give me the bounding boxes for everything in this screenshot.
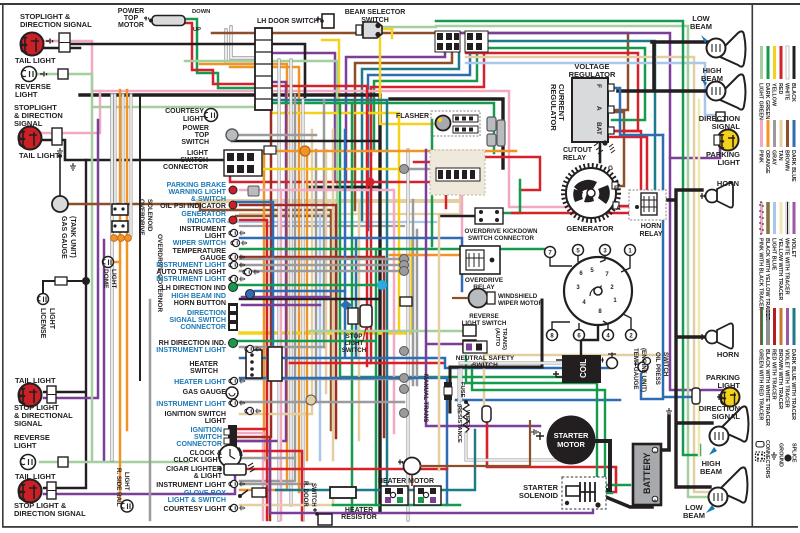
svg-text:LIGHT GREEN: LIGHT GREEN: [758, 83, 764, 120]
svg-text:LIGHT: LIGHT: [187, 150, 209, 157]
svg-text:NEUTRAL SAFETY: NEUTRAL SAFETY: [456, 355, 515, 362]
svg-text:PINK WITH BLACK TRACER: PINK WITH BLACK TRACER: [758, 238, 764, 311]
svg-text:GAS GAUGE: GAS GAUGE: [60, 216, 67, 259]
svg-text:TEMP GAUGE: TEMP GAUGE: [632, 348, 639, 390]
svg-text:SWITCH: SWITCH: [472, 362, 498, 369]
svg-text:BEAM: BEAM: [701, 74, 723, 83]
svg-text:STOP: STOP: [346, 333, 363, 340]
svg-text:FUSE: FUSE: [459, 382, 465, 398]
svg-text:UP: UP: [193, 27, 201, 33]
svg-text:-: -: [654, 449, 656, 455]
svg-text:DIRECTION SIGNAL: DIRECTION SIGNAL: [20, 20, 92, 29]
svg-text:OIL PRESS: OIL PRESS: [654, 352, 661, 385]
svg-text:YELLOW: YELLOW: [771, 83, 777, 107]
svg-text:LIGHT: LIGHT: [345, 340, 364, 347]
svg-text:OIL PSI INDICATOR: OIL PSI INDICATOR: [160, 202, 226, 210]
svg-text:WHITE WITH TRACER: WHITE WITH TRACER: [784, 238, 790, 295]
svg-text:LIGHT: LIGHT: [718, 381, 741, 390]
svg-text:LIGHT & SWITCH: LIGHT & SWITCH: [168, 496, 226, 504]
svg-text:SIGNAL: SIGNAL: [712, 412, 741, 421]
svg-text:MANUAL TRANS: MANUAL TRANS: [422, 374, 428, 422]
svg-text:INSTRUMENT LIGHT: INSTRUMENT LIGHT: [156, 481, 226, 489]
svg-text:(TANK UNIT): (TANK UNIT): [69, 216, 76, 258]
svg-text:RED: RED: [777, 83, 783, 94]
svg-text:BAT: BAT: [595, 122, 602, 135]
svg-text:REGULATOR: REGULATOR: [549, 84, 558, 131]
svg-text:REGULATOR: REGULATOR: [569, 70, 616, 79]
svg-text:PINK: PINK: [758, 150, 764, 163]
svg-text:LH DOOR SWITCH: LH DOOR SWITCH: [257, 18, 319, 25]
svg-text:& LIGHT: & LIGHT: [194, 472, 223, 480]
svg-text:COIL: COIL: [579, 359, 588, 378]
svg-text:CUTOUT: CUTOUT: [563, 147, 593, 154]
svg-text:LIGHT: LIGHT: [15, 90, 38, 99]
svg-text:TOP: TOP: [195, 132, 210, 139]
svg-text:DOME: DOME: [102, 269, 109, 289]
svg-text:SIGNAL: SIGNAL: [14, 119, 43, 128]
svg-text:VIOLET WITH TRACER: VIOLET WITH TRACER: [784, 349, 790, 408]
svg-text:SWITCH: SWITCH: [181, 139, 209, 146]
svg-text:REVERSE: REVERSE: [469, 313, 499, 320]
svg-text:BLACK WITH WHITE TRACER: BLACK WITH WHITE TRACER: [764, 349, 770, 426]
svg-text:SWITCH: SWITCH: [180, 157, 208, 164]
svg-text:GREEN WITH RED TRACER: GREEN WITH RED TRACER: [758, 349, 764, 420]
svg-text:+: +: [653, 498, 656, 504]
svg-text:COURTESY LIGHT: COURTESY LIGHT: [163, 505, 226, 513]
svg-text:TRANS): TRANS): [501, 328, 507, 350]
svg-text:RED WITH TRACER: RED WITH TRACER: [771, 349, 777, 400]
svg-text:SWITCH CONNECTOR: SWITCH CONNECTOR: [468, 235, 534, 242]
svg-text:SWITCH: SWITCH: [190, 367, 218, 375]
svg-text:LIGHT: LIGHT: [718, 158, 741, 167]
svg-text:POWER: POWER: [183, 125, 209, 132]
svg-text:COURTESY: COURTESY: [165, 108, 204, 115]
svg-text:BEAM: BEAM: [683, 511, 705, 520]
svg-text:TAIL LIGHT: TAIL LIGHT: [15, 56, 56, 65]
svg-text:SIGNAL: SIGNAL: [712, 122, 741, 131]
svg-text:DARK BLUE WITH TRACER: DARK BLUE WITH TRACER: [790, 349, 796, 420]
svg-text:DIRECTION SIGNAL: DIRECTION SIGNAL: [14, 509, 86, 518]
svg-text:TAIL LIGHT: TAIL LIGHT: [15, 472, 56, 481]
svg-text:INSTRUMENT LIGHT: INSTRUMENT LIGHT: [156, 400, 226, 408]
svg-text:RELAY: RELAY: [639, 231, 662, 238]
svg-text:OVERDRIVE: OVERDRIVE: [138, 199, 145, 235]
svg-text:LIGHT BLUE: LIGHT BLUE: [771, 238, 777, 271]
svg-text:SWITCH: SWITCH: [361, 17, 389, 24]
svg-text:CLOCK LIGHT: CLOCK LIGHT: [174, 456, 223, 464]
svg-text:CONNECTOR: CONNECTOR: [163, 164, 208, 171]
svg-text:BROWN WITH TRACER: BROWN WITH TRACER: [777, 349, 783, 409]
svg-text:(ENGINE UNIT): (ENGINE UNIT): [640, 348, 647, 392]
svg-text:ORANGE: ORANGE: [764, 150, 770, 174]
svg-text:YELLOW WITH TRACER: YELLOW WITH TRACER: [777, 238, 783, 300]
svg-text:GROUND: GROUND: [778, 443, 784, 467]
svg-text:LIGHT: LIGHT: [110, 269, 117, 289]
svg-text:TAN: TAN: [777, 150, 783, 161]
svg-text:LIGHT SWITCH: LIGHT SWITCH: [462, 320, 507, 327]
svg-text:G: G: [608, 165, 613, 172]
svg-text:DOWN: DOWN: [192, 9, 210, 15]
svg-text:HORN BUTTON: HORN BUTTON: [174, 299, 226, 307]
svg-text:DARK GREEN: DARK GREEN: [764, 83, 770, 119]
svg-text:TAIL LIGHT: TAIL LIGHT: [19, 151, 60, 160]
svg-text:SWITCH: SWITCH: [662, 352, 669, 377]
svg-text:HORN: HORN: [717, 350, 739, 359]
svg-text:LIGHT: LIGHT: [183, 116, 205, 123]
svg-text:GAS GAUGE: GAS GAUGE: [183, 388, 227, 396]
svg-text:SWITCH: SWITCH: [310, 483, 316, 507]
svg-text:LIGHT: LIGHT: [14, 441, 37, 450]
svg-text:BEAM: BEAM: [690, 22, 712, 31]
svg-text:CONNECTOR: CONNECTOR: [180, 323, 226, 331]
svg-text:LIGHT: LIGHT: [205, 417, 227, 425]
svg-text:BATTERY: BATTERY: [642, 453, 652, 495]
svg-text:MOTOR: MOTOR: [557, 440, 585, 449]
svg-text:RELAY: RELAY: [473, 284, 495, 291]
svg-text:R. DOOR: R. DOOR: [302, 481, 308, 507]
svg-text:POWER: POWER: [118, 8, 144, 15]
svg-text:CONNECTOR: CONNECTOR: [176, 440, 222, 448]
svg-text:TAIL LIGHT: TAIL LIGHT: [15, 376, 56, 385]
svg-text:HEATER MOTOR: HEATER MOTOR: [378, 478, 434, 485]
svg-text:BEAM: BEAM: [700, 467, 722, 476]
svg-text:SIGNAL: SIGNAL: [14, 419, 43, 428]
svg-text:LH DIRECTION IND: LH DIRECTION IND: [161, 284, 226, 292]
svg-text:RESISTOR: RESISTOR: [341, 514, 377, 521]
svg-text:RELAY: RELAY: [563, 155, 586, 162]
svg-text:VIOLET: VIOLET: [790, 238, 796, 258]
svg-text:(RESISTANCE: (RESISTANCE: [456, 404, 462, 443]
svg-text:F: F: [595, 84, 602, 88]
svg-text:WHITE: WHITE: [784, 83, 790, 101]
svg-text:HEATER: HEATER: [345, 507, 373, 514]
svg-text:MOTOR: MOTOR: [118, 22, 144, 29]
svg-text:BROWN: BROWN: [784, 150, 790, 171]
svg-text:R. SIDE RAIL: R. SIDE RAIL: [115, 468, 122, 507]
svg-text:HORN: HORN: [717, 179, 739, 188]
svg-text:F: F: [614, 185, 618, 192]
svg-text:GENERATOR: GENERATOR: [566, 224, 614, 233]
svg-text:WIRE): WIRE): [464, 410, 470, 427]
svg-text:WIPER SWITCH: WIPER SWITCH: [173, 239, 226, 247]
svg-text:OVERDRIVE: OVERDRIVE: [465, 277, 504, 284]
svg-text:A: A: [616, 205, 621, 212]
svg-text:LICENSE: LICENSE: [39, 308, 46, 339]
svg-text:(AUTO: (AUTO: [494, 328, 500, 347]
svg-text:BLACK: BLACK: [790, 83, 796, 102]
svg-text:WINDSHIELD: WINDSHIELD: [498, 293, 538, 300]
svg-text:SOLENOID: SOLENOID: [146, 199, 153, 232]
svg-text:GRAY: GRAY: [771, 150, 777, 165]
svg-text:FLASHER: FLASHER: [396, 113, 429, 120]
svg-text:SPLICE: SPLICE: [791, 443, 797, 463]
svg-text:WIPER MOTOR: WIPER MOTOR: [498, 300, 543, 307]
svg-text:LIGHT: LIGHT: [48, 308, 55, 330]
svg-text:LIGHT: LIGHT: [123, 472, 130, 491]
svg-text:OVERDRIVE KICKDOWN: OVERDRIVE KICKDOWN: [465, 228, 538, 235]
svg-text:HORN: HORN: [641, 223, 662, 230]
svg-text:HEATER LIGHT: HEATER LIGHT: [174, 378, 227, 386]
svg-text:SWITCH: SWITCH: [342, 347, 367, 354]
svg-text:A: A: [595, 106, 602, 111]
svg-text:SOLENOID: SOLENOID: [519, 491, 559, 500]
svg-text:TOP: TOP: [124, 15, 139, 22]
svg-text:INDICATOR: INDICATOR: [187, 217, 226, 225]
svg-text:STARTER: STARTER: [554, 431, 589, 440]
svg-text:BEAM SELECTOR: BEAM SELECTOR: [345, 9, 406, 16]
svg-text:DARK BLUE: DARK BLUE: [790, 150, 796, 182]
svg-text:INSTRUMENT LIGHT: INSTRUMENT LIGHT: [156, 346, 226, 354]
svg-text:INSTRUMENT LIGHT: INSTRUMENT LIGHT: [156, 275, 226, 283]
